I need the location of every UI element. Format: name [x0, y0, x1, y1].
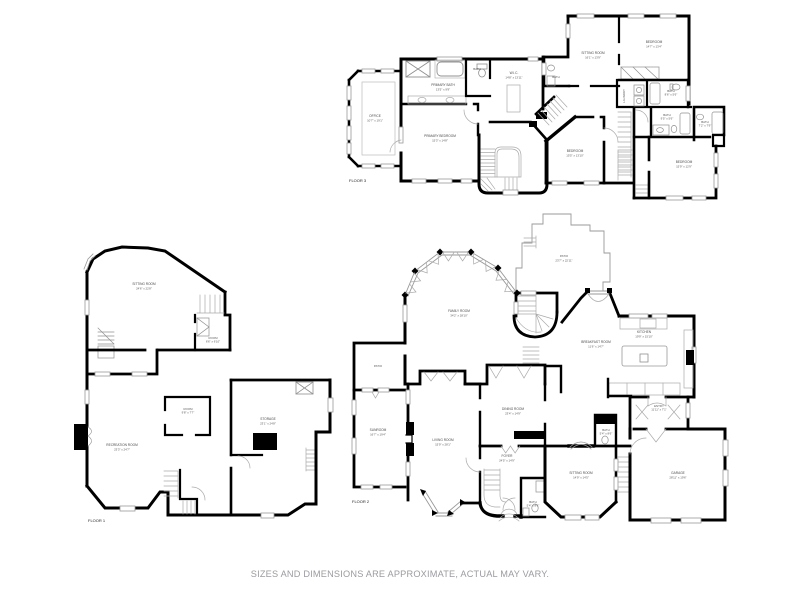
svg-text:7'2" x 7'9": 7'2" x 7'9" [699, 123, 712, 127]
svg-text:15'3" x 14'8": 15'3" x 14'8" [432, 139, 448, 143]
svg-text:23'3" x 24'7": 23'3" x 24'7" [114, 448, 130, 452]
svg-text:DINING ROOM: DINING ROOM [502, 407, 524, 411]
svg-text:BATH: BATH [473, 67, 481, 71]
svg-text:5'4" x 8'6": 5'4" x 8'6" [600, 431, 613, 435]
svg-text:19'9" x 15'10": 19'9" x 15'10" [635, 335, 652, 339]
svg-text:16'7" x 19'4": 16'7" x 19'4" [370, 433, 386, 437]
svg-text:FLOOR 1: FLOOR 1 [88, 518, 106, 523]
svg-text:SITTING ROOM: SITTING ROOM [581, 51, 605, 55]
svg-text:15'9" x 28'1": 15'9" x 28'1" [435, 443, 451, 447]
svg-text:PATIO: PATIO [374, 364, 383, 368]
svg-text:LAUNDRY: LAUNDRY [622, 89, 626, 103]
svg-text:PRIMARY BEDROOM: PRIMARY BEDROOM [424, 134, 456, 138]
svg-text:23'4" x 14'9": 23'4" x 14'9" [505, 412, 521, 416]
svg-text:10'7" x 19'1": 10'7" x 19'1" [367, 119, 383, 123]
svg-text:6'6" x 6'10": 6'6" x 6'10" [206, 340, 220, 344]
svg-text:SITTING ROOM: SITTING ROOM [569, 471, 593, 475]
svg-text:BEDROOM: BEDROOM [567, 149, 584, 153]
svg-text:FAMILY ROOM: FAMILY ROOM [448, 309, 470, 313]
svg-text:34'2" x 28'10": 34'2" x 28'10" [450, 314, 467, 318]
svg-text:STORAGE: STORAGE [260, 417, 276, 421]
svg-text:RECREATION ROOM: RECREATION ROOM [106, 443, 138, 447]
svg-text:FLOOR 2: FLOOR 2 [352, 499, 370, 504]
svg-text:BATH: BATH [552, 75, 560, 79]
svg-text:OFFICE: OFFICE [369, 114, 381, 118]
svg-text:GARAGE: GARAGE [671, 471, 685, 475]
svg-text:W.I.C.: W.I.C. [510, 71, 519, 75]
svg-text:23'7" x 22'11": 23'7" x 22'11" [555, 259, 572, 263]
svg-text:11'11" x 7'1": 11'11" x 7'1" [651, 408, 666, 412]
svg-text:9'8" x 7'7": 9'8" x 7'7" [182, 411, 195, 415]
svg-text:FOYER: FOYER [502, 454, 514, 458]
svg-text:BEDROOM: BEDROOM [676, 160, 693, 164]
svg-text:SITTING ROOM: SITTING ROOM [132, 282, 156, 286]
svg-text:24'6" x 22'8": 24'6" x 22'8" [136, 287, 152, 291]
svg-text:BREAKFAST ROOM: BREAKFAST ROOM [581, 340, 611, 344]
svg-text:LIVING ROOM: LIVING ROOM [432, 438, 454, 442]
svg-text:28'11" x 19'6": 28'11" x 19'6" [669, 476, 686, 480]
svg-text:11'6" x 14'7": 11'6" x 14'7" [588, 345, 604, 349]
svg-text:16'1" x 13'9": 16'1" x 13'9" [585, 56, 601, 60]
svg-text:14'9" x 14'5": 14'9" x 14'5" [573, 476, 589, 480]
svg-text:PATIO: PATIO [560, 254, 569, 258]
svg-text:15'5" x 13'10": 15'5" x 13'10" [566, 154, 583, 158]
svg-text:PRIMARY BATH: PRIMARY BATH [431, 83, 455, 87]
svg-text:KITCHEN: KITCHEN [637, 330, 652, 334]
svg-text:8'6" x 5'6": 8'6" x 5'6" [665, 93, 678, 97]
svg-text:5'4" x 8'6": 5'4" x 8'6" [527, 504, 540, 508]
svg-text:15'9" x 12'9": 15'9" x 12'9" [676, 165, 692, 169]
svg-text:24'5" x 14'9": 24'5" x 14'9" [499, 459, 515, 463]
svg-text:FLOOR 3: FLOOR 3 [349, 178, 367, 183]
svg-text:23'1" x 24'8": 23'1" x 24'8" [260, 422, 276, 426]
svg-text:9'5" x 5'6": 9'5" x 5'6" [661, 117, 674, 121]
svg-text:SUNROOM: SUNROOM [370, 428, 387, 432]
svg-text:14'8" x 13'11": 14'8" x 13'11" [505, 76, 522, 80]
svg-text:SIZES AND DIMENSIONS ARE APPRO: SIZES AND DIMENSIONS ARE APPROXIMATE, AC… [251, 569, 549, 579]
svg-text:BEDROOM: BEDROOM [646, 40, 663, 44]
svg-text:14'7" x 13'4": 14'7" x 13'4" [646, 45, 662, 49]
svg-text:13'5" x 9'9": 13'5" x 9'9" [436, 88, 450, 92]
